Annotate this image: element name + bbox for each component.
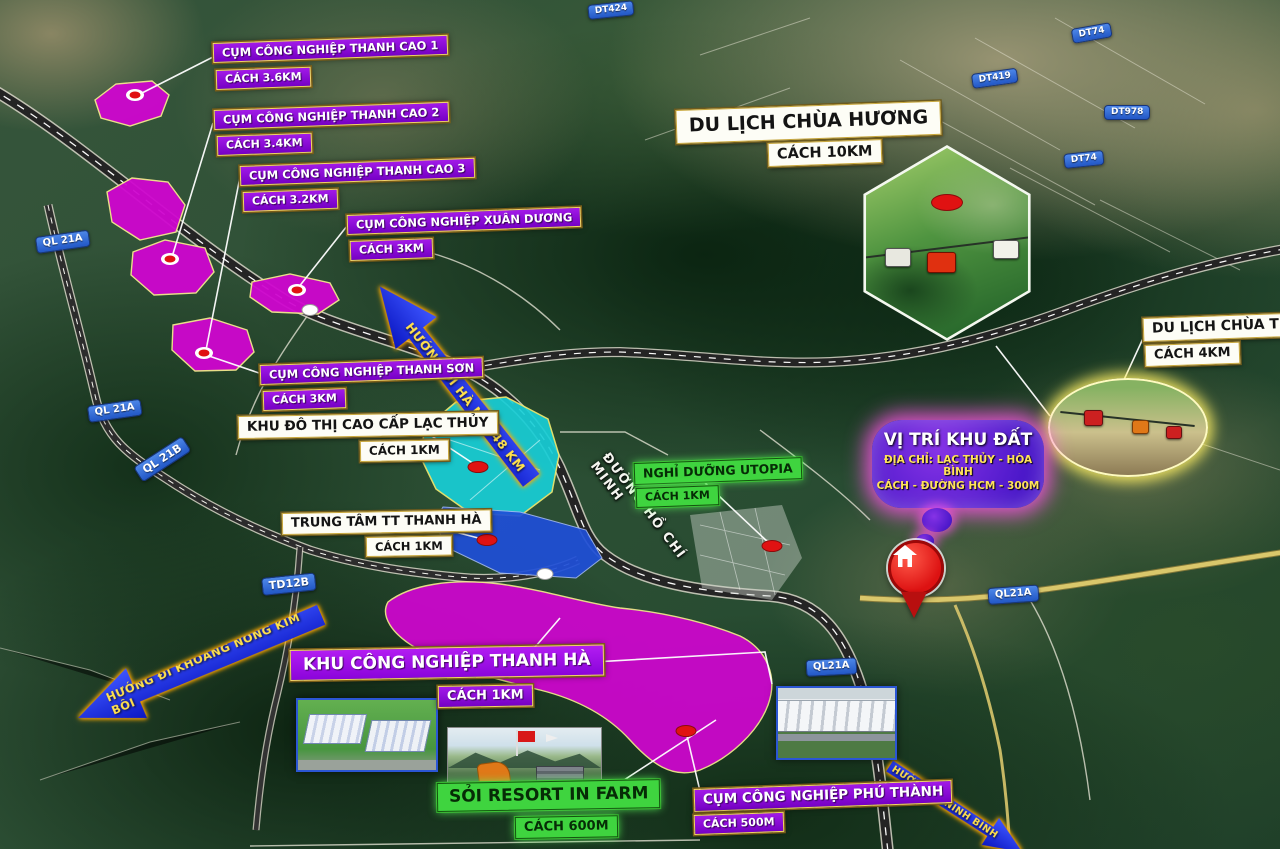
distance-xuan-duong: CÁCH 3KM (350, 238, 433, 261)
distance-soi-resort: CÁCH 600M (515, 815, 618, 839)
label-lac-thuy: KHU ĐÔ THỊ CAO CẤP LẠC THỦY (238, 411, 498, 438)
site-callout-address: ĐỊA CHỈ: LẠC THỦY - HÒA BÌNH (872, 454, 1044, 478)
distance-kcn-thanh-ha: CÁCH 1KM (438, 684, 533, 708)
cable-car-cabin (885, 248, 911, 267)
site-callout-distance: CÁCH - ĐƯỜNG HCM - 300M (872, 480, 1044, 492)
apron (298, 760, 436, 770)
distance-thanh-cao-2: CÁCH 3.4KM (217, 133, 312, 156)
cable-car-cabin (1132, 420, 1149, 434)
thanh-ha-factory-photo (296, 698, 438, 772)
distance-thanh-cao-1: CÁCH 3.6KM (216, 67, 311, 90)
warehouse-roofs (778, 700, 895, 732)
site-callout-title: VỊ TRÍ KHU ĐẤT (872, 430, 1044, 450)
white-flag (546, 734, 558, 742)
distance-utopia: CÁCH 1KM (636, 485, 719, 508)
phu-thanh-factory-photo (776, 686, 897, 760)
red-flag (518, 731, 535, 742)
label-kcn-thanh-ha: KHU CÔNG NGHIỆP THANH HÀ (290, 645, 604, 682)
mountains (448, 746, 601, 768)
distance-chua-tien: CÁCH 4KM (1145, 342, 1240, 368)
chua-tien-photo (1048, 378, 1208, 477)
warehouse (365, 720, 432, 752)
cloud-puff (922, 508, 952, 532)
marker-dot (931, 194, 963, 211)
road-badge-ql21a-pin: QL21A (987, 584, 1039, 604)
cable-line (1060, 411, 1194, 427)
site-pin (888, 540, 944, 596)
utopia-settlement (690, 505, 802, 600)
cable-car-cabin (993, 240, 1019, 259)
distance-trung-tam: CÁCH 1KM (366, 536, 452, 558)
cable-car-cabin (1084, 410, 1103, 426)
distance-phu-thanh: CÁCH 500M (694, 812, 784, 835)
label-chua-tien: DU LỊCH CHÙA TIÊN (1143, 312, 1280, 341)
house-icon (891, 543, 919, 569)
road-badge-ql21a-south: QL21A (806, 657, 857, 676)
factory-road (778, 734, 895, 741)
label-trung-tam: TRUNG TÂM TT THANH HÀ (282, 509, 491, 535)
label-soi-resort: SỎI RESORT IN FARM (437, 779, 661, 812)
road-badge-dt978: DT978 (1104, 105, 1150, 120)
distance-thanh-son: CÁCH 3KM (263, 388, 346, 411)
site-callout: VỊ TRÍ KHU ĐẤT ĐỊA CHỈ: LẠC THỦY - HÒA B… (872, 420, 1044, 508)
cable-car-cabin (927, 252, 956, 273)
warehouse (303, 714, 367, 744)
site-pin-tail (901, 592, 927, 618)
distance-lac-thuy: CÁCH 1KM (360, 439, 449, 462)
distance-thanh-cao-3: CÁCH 3.2KM (243, 189, 338, 212)
cable-car-cabin (1166, 426, 1182, 439)
map: ĐƯỜNG HỒ CHÍ MINH HƯỚNG ĐI HÀ NỘI 48 KM … (0, 0, 1280, 849)
distance-chua-huong: CÁCH 10KM (768, 139, 882, 167)
